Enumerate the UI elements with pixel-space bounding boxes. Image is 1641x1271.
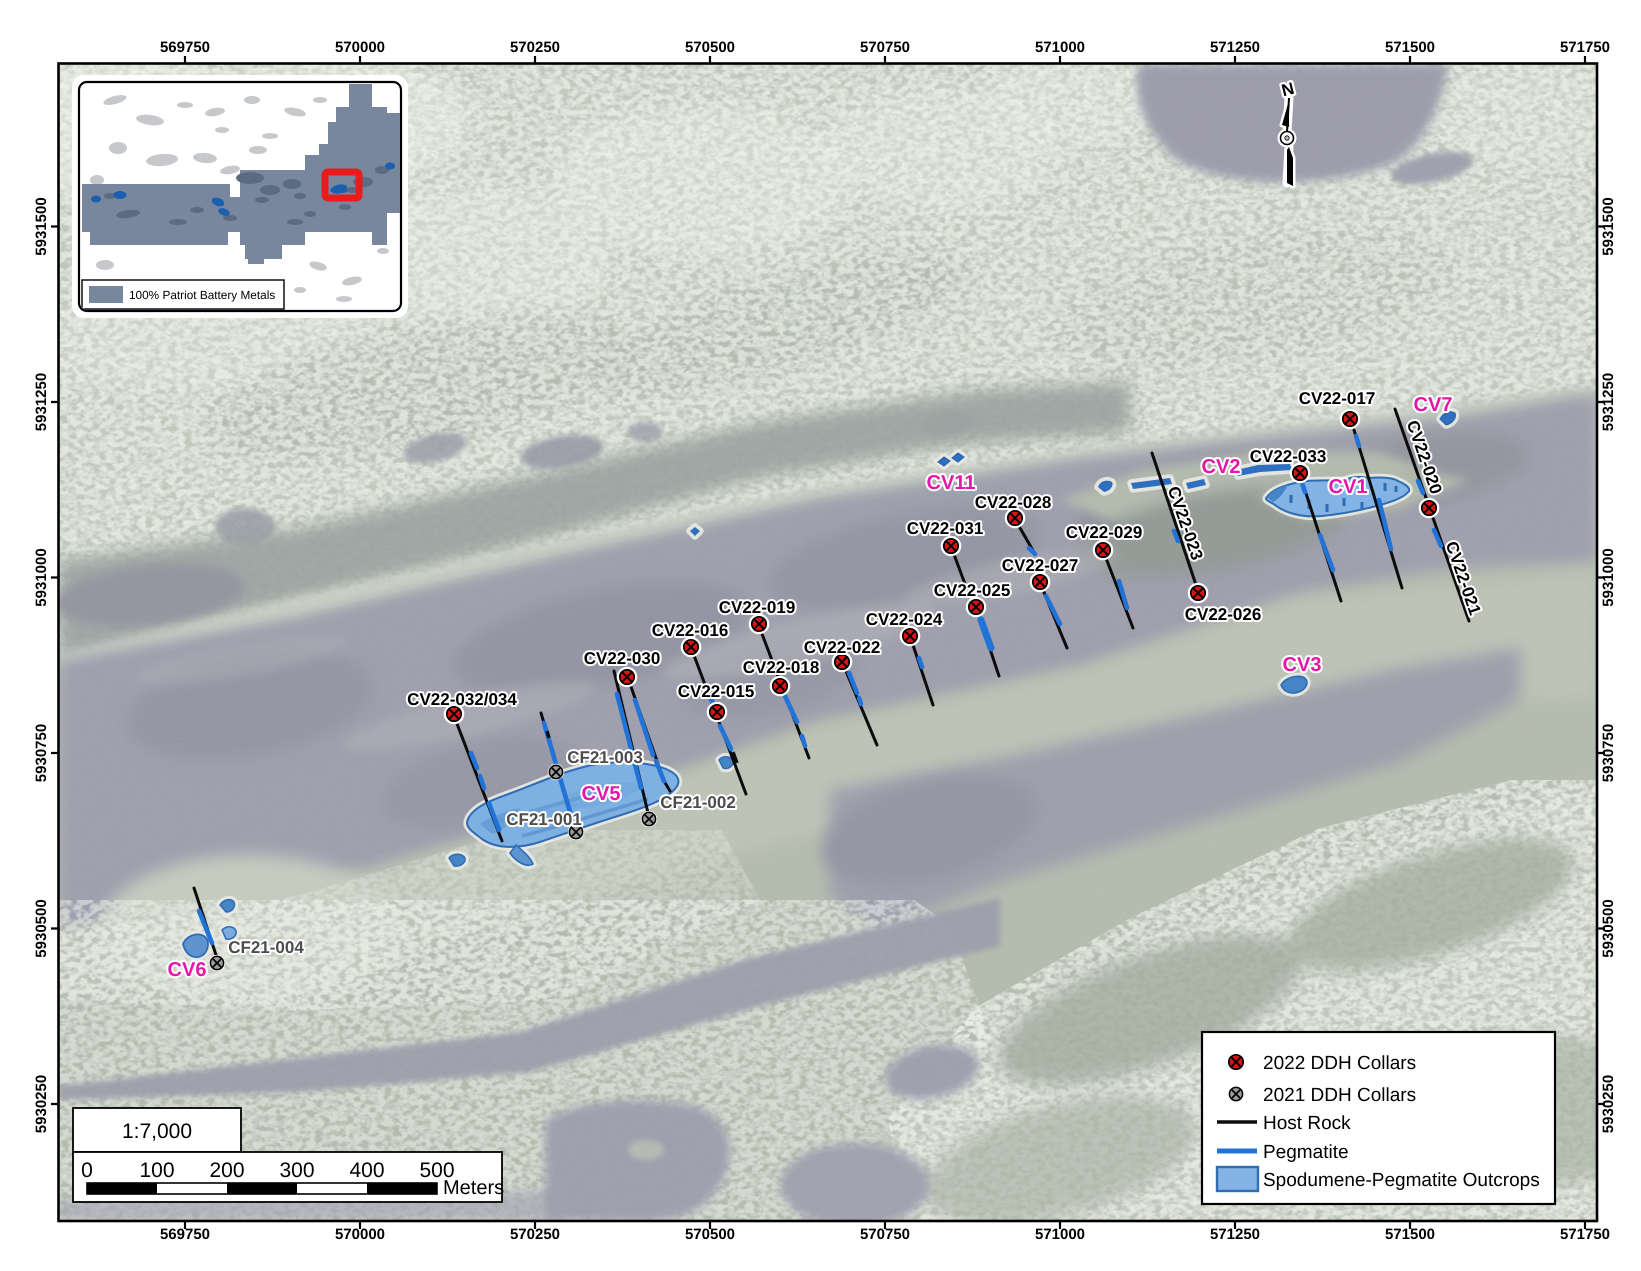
svg-text:CV7: CV7	[1414, 394, 1453, 416]
svg-text:CV22-015: CV22-015	[678, 682, 755, 701]
svg-text:CF21-002: CF21-002	[660, 793, 736, 812]
svg-text:200: 200	[209, 1159, 244, 1182]
svg-text:Spodumene-Pegmatite Outcrops: Spodumene-Pegmatite Outcrops	[1263, 1170, 1540, 1191]
svg-text:Host Rock: Host Rock	[1263, 1113, 1351, 1134]
svg-text:CV22-022: CV22-022	[804, 638, 881, 657]
svg-text:CV22-031: CV22-031	[907, 519, 984, 538]
svg-text:570250: 570250	[510, 1226, 560, 1243]
svg-text:CF21-001: CF21-001	[506, 810, 582, 829]
svg-text:CV22-028: CV22-028	[975, 493, 1052, 512]
svg-text:5931500: 5931500	[33, 197, 50, 255]
svg-text:CV5: CV5	[582, 783, 621, 805]
svg-text:2021 DDH Collars: 2021 DDH Collars	[1263, 1085, 1416, 1106]
svg-text:CV22-017: CV22-017	[1299, 389, 1376, 408]
svg-text:CV6: CV6	[168, 959, 207, 981]
svg-text:CF21-004: CF21-004	[228, 938, 304, 957]
svg-text:569750: 569750	[160, 1226, 210, 1243]
svg-text:5931000: 5931000	[1600, 548, 1617, 606]
svg-text:571750: 571750	[1560, 39, 1610, 56]
svg-text:571750: 571750	[1560, 1226, 1610, 1243]
svg-text:CV1: CV1	[1329, 476, 1368, 498]
svg-text:CV22-029: CV22-029	[1066, 523, 1143, 542]
svg-text:5930250: 5930250	[33, 1075, 50, 1133]
svg-text:CV3: CV3	[1283, 654, 1322, 676]
svg-text:CV22-032/034: CV22-032/034	[407, 690, 517, 709]
svg-text:570500: 570500	[685, 39, 735, 56]
svg-text:CV22-026: CV22-026	[1185, 605, 1262, 624]
svg-text:CV22-024: CV22-024	[866, 610, 943, 629]
svg-text:570750: 570750	[860, 39, 910, 56]
svg-text:300: 300	[279, 1159, 314, 1182]
svg-text:5931250: 5931250	[1600, 373, 1617, 431]
svg-text:5930250: 5930250	[1600, 1075, 1617, 1133]
svg-text:571250: 571250	[1210, 39, 1260, 56]
svg-text:571000: 571000	[1035, 1226, 1085, 1243]
svg-text:100% Patriot Battery Metals: 100% Patriot Battery Metals	[129, 288, 275, 302]
svg-text:Pegmatite: Pegmatite	[1263, 1142, 1349, 1163]
svg-text:5930500: 5930500	[33, 899, 50, 957]
svg-text:0: 0	[81, 1159, 93, 1182]
svg-text:100: 100	[139, 1159, 174, 1182]
svg-text:CV22-025: CV22-025	[934, 581, 1011, 600]
svg-text:Meters: Meters	[443, 1177, 504, 1199]
svg-text:570500: 570500	[685, 1226, 735, 1243]
svg-text:569750: 569750	[160, 39, 210, 56]
svg-text:5931500: 5931500	[1600, 197, 1617, 255]
svg-text:CV22-019: CV22-019	[719, 598, 796, 617]
svg-text:571500: 571500	[1385, 39, 1435, 56]
svg-text:5931000: 5931000	[33, 548, 50, 606]
svg-text:CV22-033: CV22-033	[1250, 447, 1327, 466]
svg-text:CV22-027: CV22-027	[1002, 556, 1079, 575]
svg-text:5930750: 5930750	[1600, 724, 1617, 782]
svg-text:CV22-018: CV22-018	[743, 658, 820, 677]
svg-text:CV22-030: CV22-030	[584, 649, 661, 668]
svg-text:570750: 570750	[860, 1226, 910, 1243]
svg-text:1:7,000: 1:7,000	[122, 1120, 192, 1143]
svg-text:571250: 571250	[1210, 1226, 1260, 1243]
svg-text:CV2: CV2	[1202, 456, 1241, 478]
svg-text:CV11: CV11	[927, 472, 976, 494]
svg-text:570000: 570000	[335, 39, 385, 56]
svg-text:5930750: 5930750	[33, 724, 50, 782]
svg-text:CV22-016: CV22-016	[652, 621, 729, 640]
svg-text:5931250: 5931250	[33, 373, 50, 431]
svg-text:400: 400	[349, 1159, 384, 1182]
svg-text:571000: 571000	[1035, 39, 1085, 56]
svg-text:570250: 570250	[510, 39, 560, 56]
svg-text:CF21-003: CF21-003	[567, 748, 643, 767]
svg-text:571500: 571500	[1385, 1226, 1435, 1243]
svg-text:5930500: 5930500	[1600, 899, 1617, 957]
svg-text:570000: 570000	[335, 1226, 385, 1243]
svg-text:2022 DDH Collars: 2022 DDH Collars	[1263, 1053, 1416, 1074]
